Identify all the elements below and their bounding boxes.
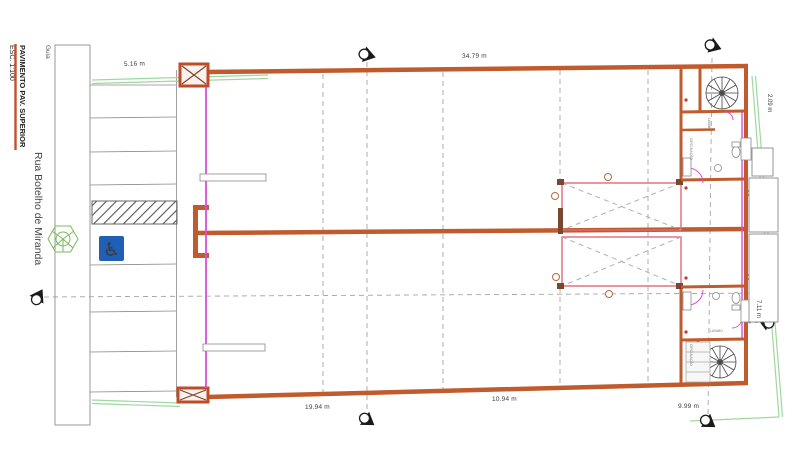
column-box-top-left bbox=[180, 64, 208, 86]
column-box-bottom-left bbox=[178, 388, 208, 402]
room-label-circulation-lower: CIRCULAÇÃO bbox=[689, 344, 694, 366]
ledge-upper bbox=[200, 174, 266, 181]
accessible-parking-icon: ♿ bbox=[99, 236, 124, 261]
street-name-label: Rua Botelho de Miranda bbox=[32, 152, 44, 265]
curb-strip bbox=[55, 45, 90, 425]
title-block: ESC. 1:100 PAVIMENTO PAV. SUPERIOR bbox=[8, 44, 27, 150]
svg-text:♿: ♿ bbox=[103, 240, 120, 261]
building-walls bbox=[178, 64, 748, 402]
curb-label: Guia bbox=[44, 45, 51, 59]
ledge-lower bbox=[203, 344, 265, 351]
dim-right-setback: 2.09 m bbox=[766, 94, 772, 112]
keynote-circles bbox=[552, 174, 755, 298]
dim-bottom-left: 19.94 m bbox=[305, 404, 330, 411]
drawing-title: PAVIMENTO PAV. SUPERIOR bbox=[18, 45, 27, 148]
dim-bottom-middle: 10.94 m bbox=[492, 396, 517, 403]
door-arc bbox=[725, 112, 733, 120]
spiral-stair-top bbox=[706, 77, 738, 109]
grid-marker bbox=[27, 285, 49, 308]
hatched-no-parking-strip bbox=[92, 201, 177, 224]
door-arc bbox=[732, 318, 742, 328]
floor-plan-canvas: ESC. 1:100 PAVIMENTO PAV. SUPERIOR Rua B… bbox=[0, 0, 800, 458]
dim-bottom-right: 9.99 m bbox=[678, 403, 699, 410]
room-label-lavabo-upper: LAVABO bbox=[707, 118, 711, 131]
drawing-scale-label: ESC. 1:100 bbox=[8, 45, 15, 81]
service-core: CIRCULAÇÃO LAVABO CIRCULAÇÃO LAVABO bbox=[681, 67, 751, 383]
street-area: Rua Botelho de Miranda Guia bbox=[32, 45, 90, 425]
floor-plan-sheet: ESC. 1:100 PAVIMENTO PAV. SUPERIOR Rua B… bbox=[0, 0, 800, 458]
grid-marker bbox=[357, 45, 378, 65]
east-window bbox=[741, 138, 751, 160]
grid-marker bbox=[697, 411, 720, 434]
grid-markers bbox=[27, 36, 776, 434]
room-label-lavabo-lower: LAVABO bbox=[710, 329, 723, 333]
east-terraces bbox=[749, 148, 778, 322]
dim-front-setback: 5.16 m bbox=[124, 60, 145, 68]
dim-top-width: 34.79 m bbox=[462, 53, 487, 60]
room-label-circulation-upper: CIRCULAÇÃO bbox=[689, 138, 694, 160]
void-columns bbox=[557, 179, 683, 289]
grid-marker bbox=[356, 409, 379, 432]
dim-right-depth: 7.11 m bbox=[755, 300, 761, 318]
grid-marker bbox=[703, 36, 724, 57]
void-lower bbox=[562, 237, 681, 286]
void-upper bbox=[562, 183, 681, 230]
